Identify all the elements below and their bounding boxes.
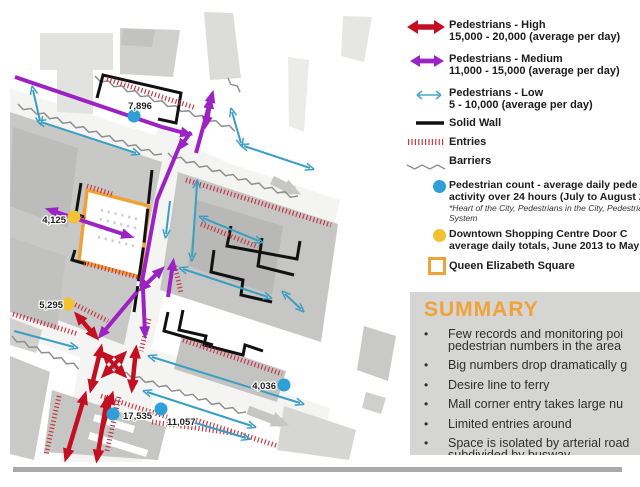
legend: Pedestrians - High 15,000 - 20,000 (aver… (405, 0, 640, 285)
legend-row-door-count: Downtown Shopping Centre Door C average … (405, 228, 640, 252)
legend-point-line: activity over 24 hours (July to August 2 (449, 191, 640, 203)
pedestrian-count-dot (278, 379, 291, 392)
legend-label: Pedestrians - Low (449, 87, 640, 99)
legend-label: Pedestrians - Medium (449, 53, 640, 65)
count-label: 7,896 (128, 101, 152, 112)
legend-row-pedestrian-count: Pedestrian count - average daily pede ac… (405, 179, 640, 223)
low-flow-arrow-icon (412, 87, 446, 103)
legend-point-note: System (449, 214, 640, 224)
queen-elizabeth-square-icon (428, 257, 446, 275)
count-label: 11,057 (167, 417, 196, 428)
count-label: 17,535 (123, 411, 153, 422)
count-label: 5,295 (39, 300, 63, 311)
pedestrian-flow-map: 7,896 4,125 5,295 17,535 11,057 4,036 (0, 0, 410, 467)
summary-panel: SUMMARY • Few records and monitoring poi… (410, 292, 640, 455)
summary-bullet: • Few records and monitoring poipedestri… (424, 329, 640, 352)
medium-flow-arrow-icon (408, 53, 446, 69)
count-label: 4,125 (42, 215, 66, 226)
pedestrian-count-dot-icon (433, 180, 446, 193)
legend-row-entries: Entries (405, 136, 640, 148)
entries-icon (406, 136, 446, 148)
legend-range: 5 - 10,000 (average per day) (449, 99, 640, 111)
door-count-dot (62, 298, 75, 311)
solid-wall-icon (414, 117, 446, 129)
legend-row-barriers: Barriers (405, 155, 640, 171)
door-count-dot-icon (433, 229, 446, 242)
legend-label: Barriers (449, 155, 491, 167)
legend-label: Solid Wall (449, 117, 501, 129)
slide: 7,896 4,125 5,295 17,535 11,057 4,036 Pe… (0, 0, 640, 487)
legend-point-line: Downtown Shopping Centre Door C (449, 228, 640, 240)
legend-row-low: Pedestrians - Low 5 - 10,000 (average pe… (405, 87, 640, 111)
legend-label: Pedestrians - High (449, 19, 640, 31)
queen-elizabeth-square (79, 190, 149, 277)
legend-point-line: Pedestrian count - average daily pede (449, 179, 640, 191)
legend-row-medium: Pedestrians - Medium 11,000 - 15,000 (av… (405, 53, 640, 77)
summary-title: SUMMARY (424, 298, 640, 322)
legend-point-note: *Heart of the City, Pedestrians in the C… (449, 204, 640, 214)
summary-list: • Few records and monitoring poipedestri… (424, 329, 640, 455)
barriers-icon (405, 155, 446, 171)
summary-bullet: • Mall corner entry takes large nu (424, 399, 640, 411)
pedestrian-count-dot (107, 408, 120, 421)
legend-row-high: Pedestrians - High 15,000 - 20,000 (aver… (405, 19, 640, 43)
summary-bullet: • Desire line to ferry (424, 380, 640, 392)
bottom-divider-bar (13, 467, 622, 472)
pedestrian-count-dot (155, 403, 168, 416)
legend-row-square: Queen Elizabeth Square (405, 257, 640, 275)
summary-bullet: • Limited entries around (424, 419, 640, 431)
legend-label: Queen Elizabeth Square (449, 260, 575, 272)
legend-point-line: average daily totals, June 2013 to May 2 (449, 240, 640, 252)
summary-bullet: • Space is isolated by arterial roadsubd… (424, 438, 640, 455)
legend-range: 15,000 - 20,000 (average per day) (449, 31, 640, 43)
legend-label: Entries (449, 136, 486, 148)
door-count-dot (68, 211, 81, 224)
count-label: 4,036 (252, 381, 276, 392)
legend-range: 11,000 - 15,000 (average per day) (449, 65, 640, 77)
summary-bullet: • Big numbers drop dramatically g (424, 360, 640, 372)
high-flow-arrow-icon (406, 19, 446, 35)
legend-row-wall: Solid Wall (405, 117, 640, 129)
